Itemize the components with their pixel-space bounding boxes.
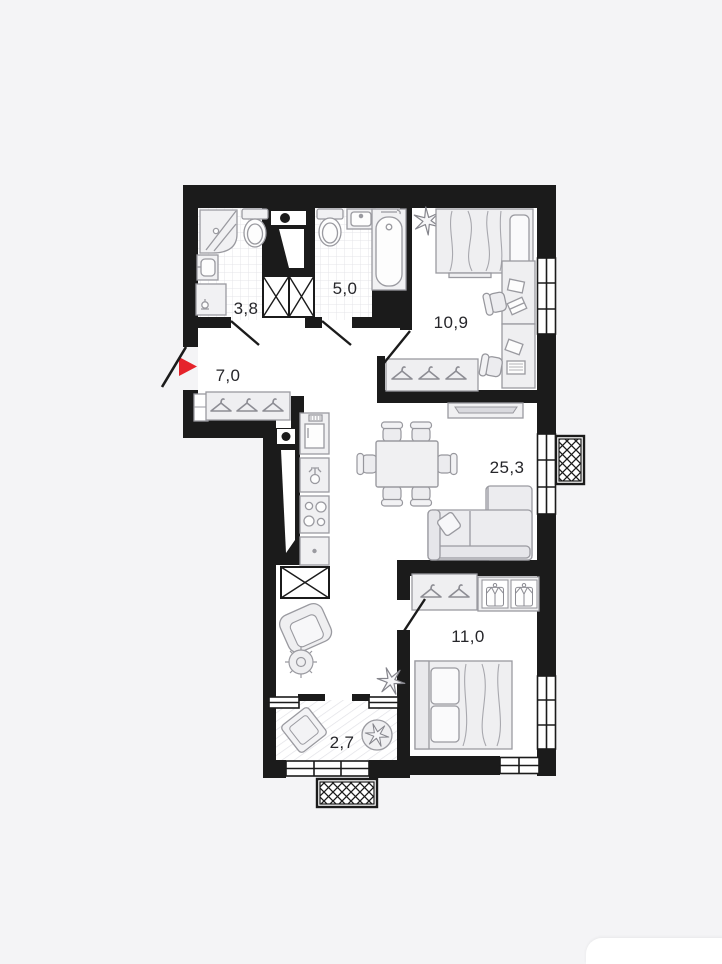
fridge-icon <box>300 413 329 454</box>
window-bedroom-top-icon <box>538 258 556 334</box>
tv-unit-icon <box>448 403 523 418</box>
window-living-icon <box>538 434 556 514</box>
hall-wardrobe-icon <box>206 392 290 420</box>
duct-box2-icon <box>281 567 329 598</box>
floor-plan: 3,8 5,0 7,0 10,9 25,3 11,0 2,7 <box>0 0 722 960</box>
entrance-arrow-icon <box>179 357 197 376</box>
room-label-balcony: 2,7 <box>330 733 355 752</box>
toilet2-icon <box>317 209 343 246</box>
bathtub-icon <box>372 209 406 290</box>
window-balcony-right-icon <box>369 697 398 708</box>
window-bedroom-corner-icon <box>500 758 539 774</box>
wardrobe-bottom-icon <box>412 574 539 611</box>
room-label-bedroom-top: 10,9 <box>434 313 469 332</box>
corner-shower-icon <box>200 210 237 253</box>
kitchen <box>300 413 329 565</box>
room-label-bedroom-bottom: 11,0 <box>451 627 484 646</box>
washbasin-icon <box>197 255 218 280</box>
dining-table-icon <box>376 441 438 487</box>
kitchen-cabinet-icon <box>300 537 329 565</box>
window-balcony-left-icon <box>269 697 299 708</box>
stove-icon <box>300 496 329 533</box>
washing-machine-icon <box>196 284 226 315</box>
room-label-hallway: 7,0 <box>216 366 241 385</box>
ac-basket-bottom-icon <box>317 779 377 807</box>
ac-basket-right-icon <box>556 436 584 484</box>
room-label-bathroom-large: 5,0 <box>333 279 358 298</box>
toilet-icon <box>242 209 268 247</box>
balcony-plant-icon <box>362 720 392 750</box>
window-bedroom-bottom-icon <box>538 676 556 749</box>
duct-box-icon <box>263 276 314 317</box>
room-label-bathroom-small: 3,8 <box>234 299 259 318</box>
wardrobe-top-icon <box>386 359 478 391</box>
bed-bottom-icon <box>415 661 512 749</box>
kitchen-sink-icon <box>300 458 329 492</box>
window-balcony-bottom-icon <box>286 761 369 776</box>
washbasin2-icon <box>347 209 375 229</box>
room-label-living: 25,3 <box>490 458 525 477</box>
bottom-sheet-corner[interactable] <box>586 938 722 964</box>
